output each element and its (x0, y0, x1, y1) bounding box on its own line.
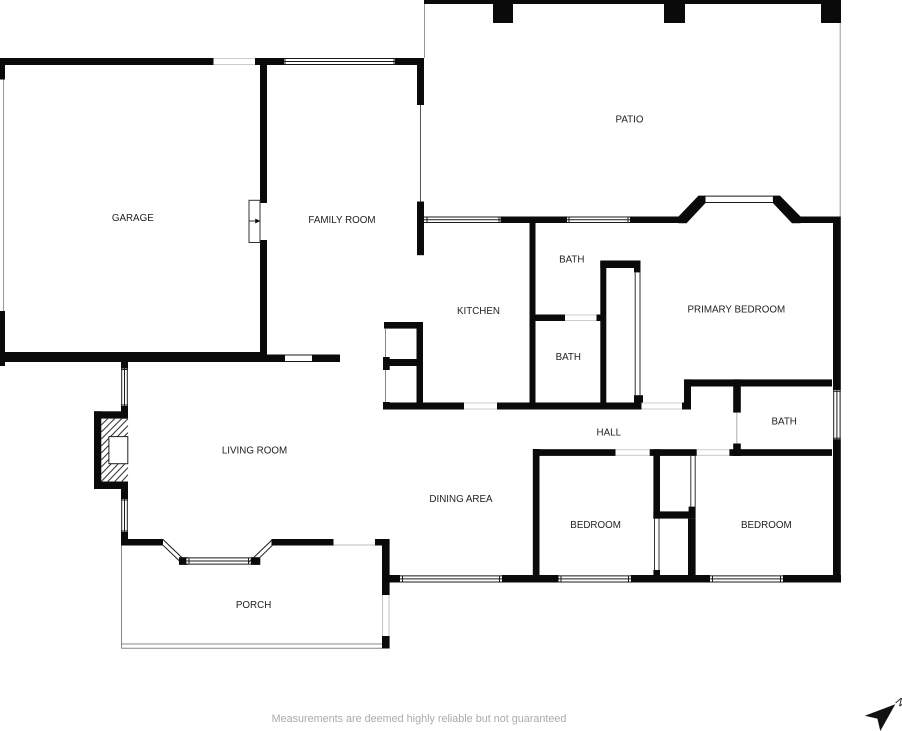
svg-text:PRIMARY BEDROOM: PRIMARY BEDROOM (687, 305, 785, 316)
svg-text:PATIO: PATIO (616, 114, 644, 125)
svg-text:PORCH: PORCH (236, 600, 271, 611)
svg-text:BATH: BATH (559, 255, 584, 266)
svg-text:Measurements are deemed highly: Measurements are deemed highly reliable … (272, 713, 567, 725)
svg-text:FAMILY ROOM: FAMILY ROOM (308, 215, 375, 226)
svg-text:BATH: BATH (771, 417, 796, 428)
svg-text:BEDROOM: BEDROOM (570, 520, 621, 531)
svg-text:HALL: HALL (597, 428, 622, 439)
svg-text:GARAGE: GARAGE (112, 213, 154, 224)
svg-text:LIVING ROOM: LIVING ROOM (222, 446, 287, 457)
svg-text:BATH: BATH (556, 352, 581, 363)
svg-text:DINING AREA: DINING AREA (429, 494, 493, 505)
svg-text:BEDROOM: BEDROOM (741, 520, 792, 531)
svg-text:KITCHEN: KITCHEN (457, 306, 500, 317)
